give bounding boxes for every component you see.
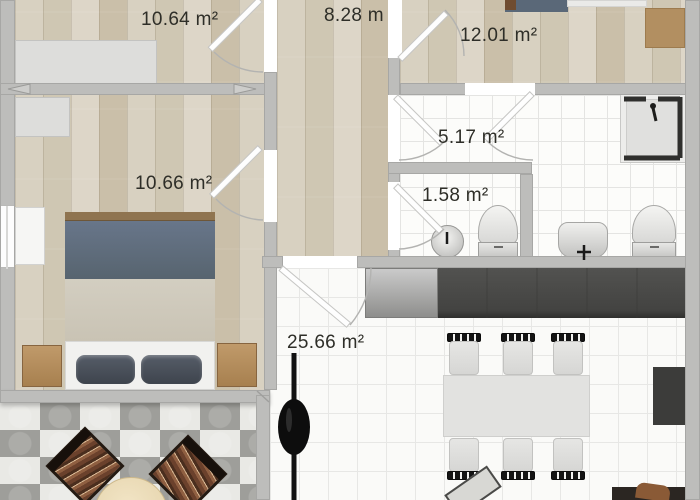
- room-area-label: 25.66 m²: [287, 332, 364, 354]
- wall-mitre-line: [257, 391, 269, 402]
- room-area-label: 12.01 m²: [460, 25, 537, 47]
- floor-plan: 10.64 m² 8.28 m 12.01 m² 5.17 m² 1.58 m²…: [0, 0, 700, 500]
- room-area-label: 5.17 m²: [438, 127, 505, 149]
- shower-head-icon: [650, 103, 656, 121]
- faucet-icon: [447, 232, 591, 260]
- dimension-arrow: [8, 84, 256, 94]
- room-area-label: 1.58 m²: [422, 185, 489, 207]
- room-area-label: 8.28 m: [324, 5, 384, 27]
- plan-symbols-overlay: [0, 0, 700, 500]
- door-swing-arc: [214, 10, 533, 325]
- floor-lamp: [278, 353, 310, 500]
- room-area-label: 10.66 m²: [135, 173, 212, 195]
- room-area-label: 10.64 m²: [141, 9, 218, 31]
